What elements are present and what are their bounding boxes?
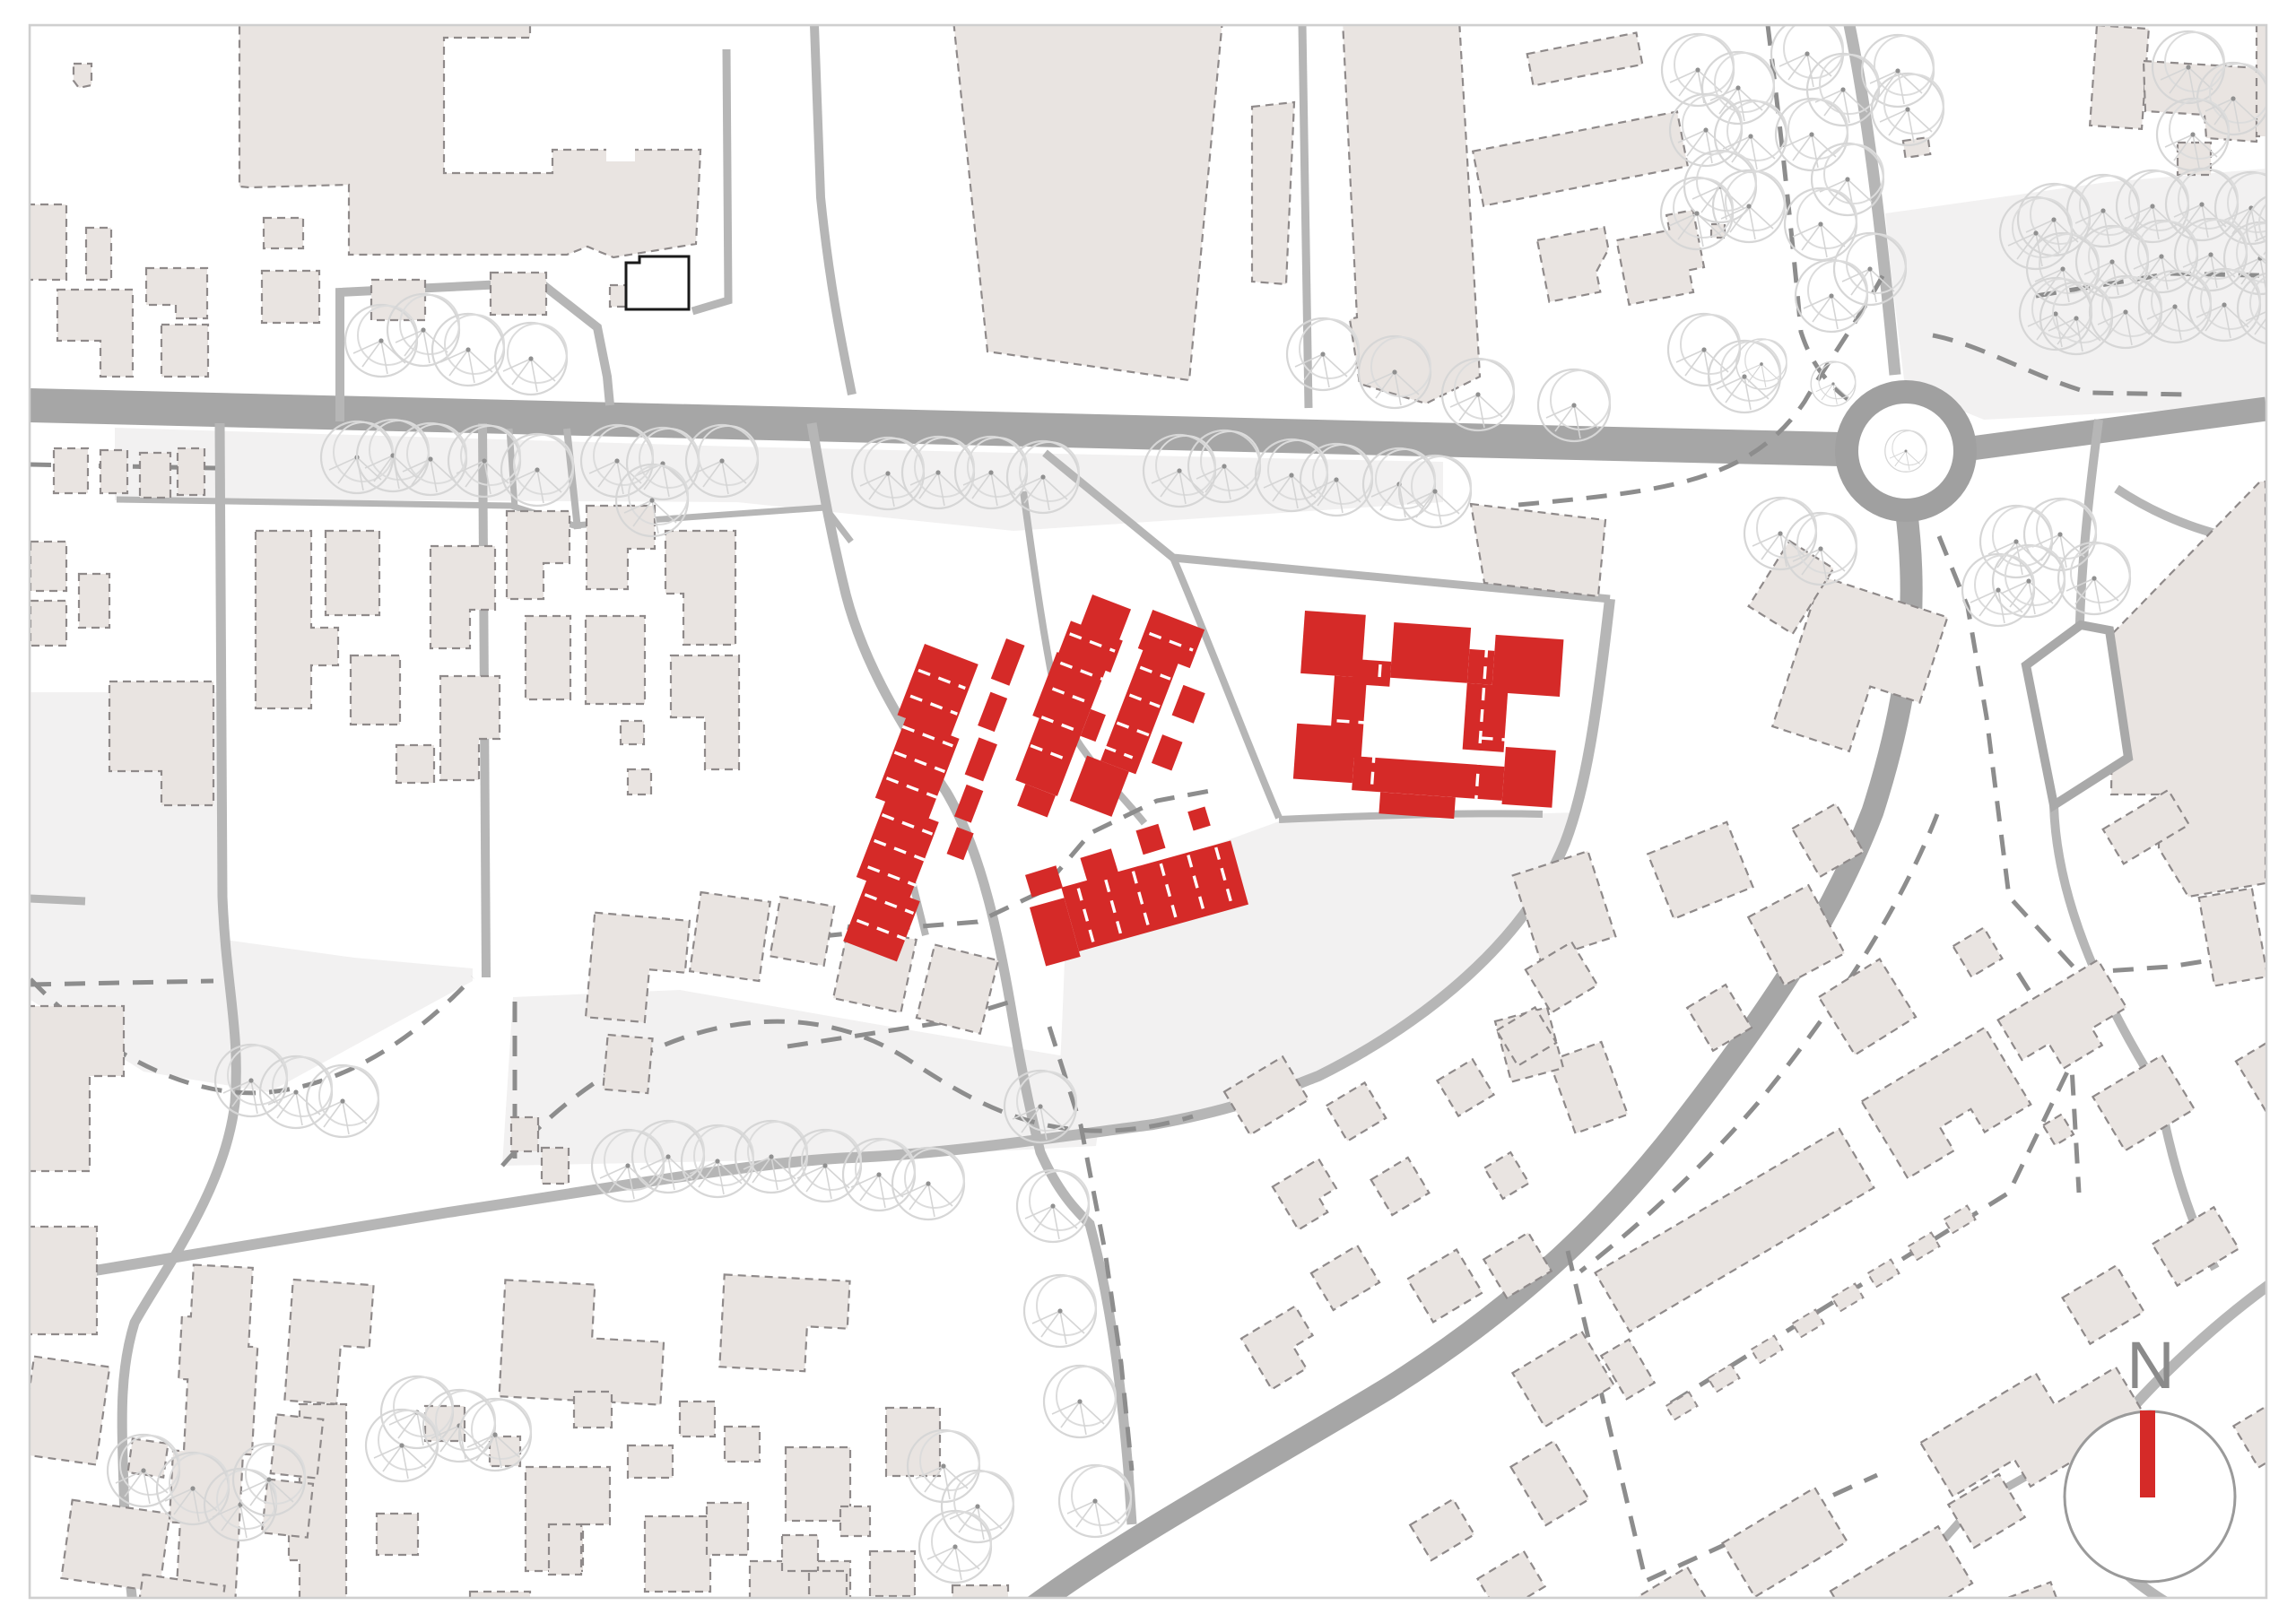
svg-text:N: N	[2126, 1328, 2174, 1402]
